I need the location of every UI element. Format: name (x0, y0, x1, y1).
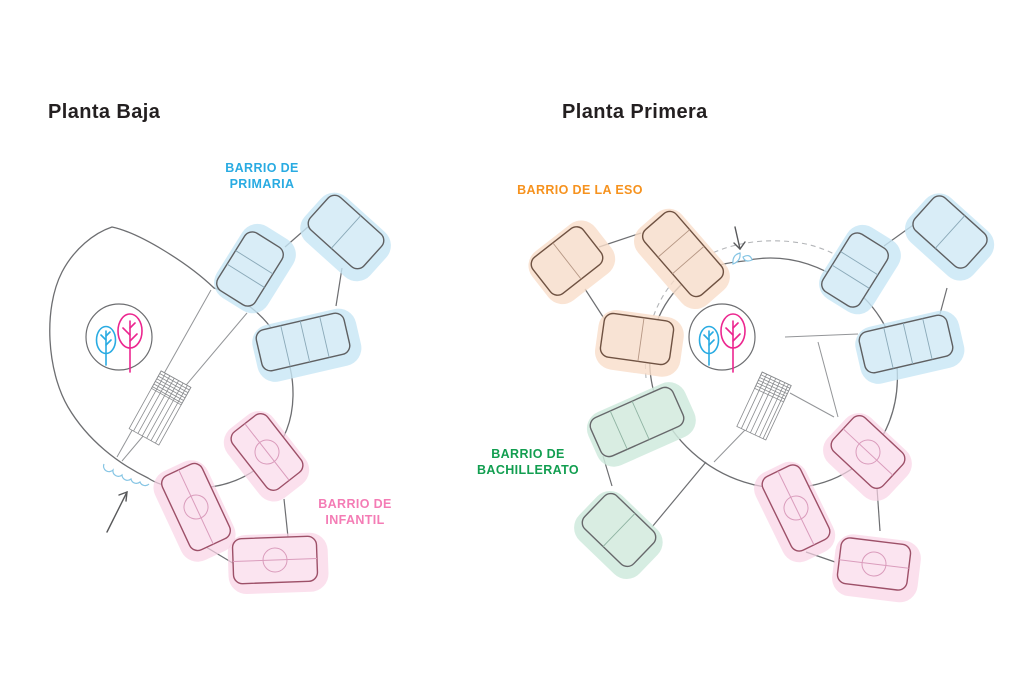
classroom-block-eso (593, 308, 687, 379)
room-connector (940, 288, 947, 314)
entrance-arrow-icon (107, 492, 127, 532)
room-connector (284, 499, 288, 537)
floor-title-planta-baja: Planta Baja (48, 101, 160, 124)
classroom-block-infantil (227, 532, 329, 594)
label-barrio-eso: BARRIO DE LA ESO (505, 182, 655, 198)
entrance-arrow-icon (734, 227, 745, 249)
label-barrio-primaria: BARRIO DE PRIMARIA (201, 160, 323, 193)
entrance-mark (743, 256, 752, 261)
classroom-block-bachillerato (581, 376, 701, 472)
room-connector (652, 462, 706, 527)
label-barrio-bachillerato: BARRIO DE BACHILLERATO (462, 446, 594, 479)
planta-primera-plan (521, 186, 1001, 604)
classroom-block-primaria (249, 305, 365, 385)
planta-baja-plan (50, 185, 399, 594)
floor-title-planta-primera: Planta Primera (562, 101, 708, 124)
classroom-block-infantil (830, 532, 923, 604)
classroom-block-primaria (293, 185, 399, 288)
label-barrio-infantil: BARRIO DE INFANTIL (294, 496, 416, 529)
classroom-block-eso (521, 213, 622, 311)
classroom-block-bachillerato (567, 483, 670, 586)
classroom-block-primaria (898, 186, 1002, 288)
room-connector (336, 268, 342, 306)
